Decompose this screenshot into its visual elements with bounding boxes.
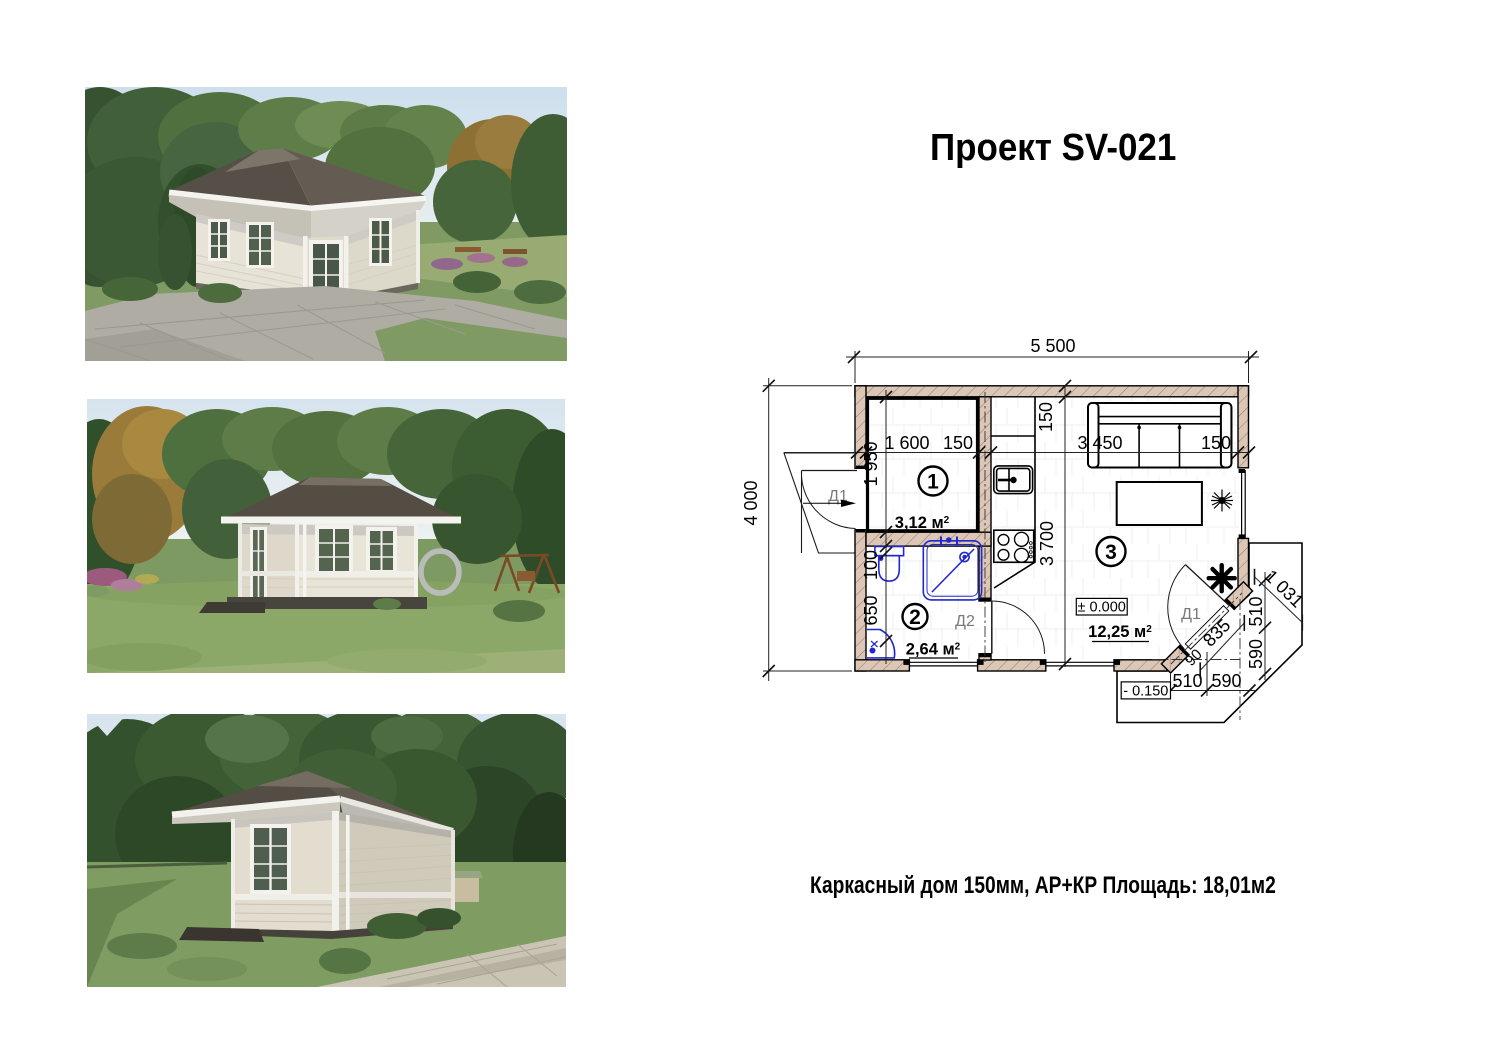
svg-text:Д1: Д1 bbox=[1181, 606, 1201, 623]
svg-text:± 0.000: ± 0.000 bbox=[1078, 600, 1126, 616]
svg-text:2: 2 bbox=[909, 606, 921, 629]
svg-text:3 700: 3 700 bbox=[1037, 521, 1057, 566]
svg-text:100: 100 bbox=[861, 550, 881, 580]
svg-text:650: 650 bbox=[861, 595, 881, 625]
svg-text:150: 150 bbox=[1036, 402, 1056, 432]
svg-text:5 500: 5 500 bbox=[1030, 336, 1075, 356]
svg-text:3: 3 bbox=[1105, 541, 1117, 564]
svg-text:1 600: 1 600 bbox=[884, 433, 929, 453]
svg-text:3,12 м2: 3,12 м2 bbox=[895, 514, 950, 532]
svg-text:510: 510 bbox=[1172, 671, 1202, 691]
svg-text:Д2: Д2 bbox=[955, 613, 975, 630]
svg-text:2,64 м2: 2,64 м2 bbox=[906, 641, 961, 659]
svg-text:1: 1 bbox=[927, 471, 939, 494]
svg-text:590: 590 bbox=[1211, 671, 1241, 691]
svg-text:4 000: 4 000 bbox=[741, 480, 761, 525]
svg-text:1 950: 1 950 bbox=[861, 441, 881, 486]
svg-text:590: 590 bbox=[1246, 639, 1266, 669]
svg-text:150: 150 bbox=[1201, 433, 1231, 453]
svg-text:12,25 м2: 12,25 м2 bbox=[1088, 623, 1152, 641]
svg-text:3 450: 3 450 bbox=[1077, 433, 1122, 453]
svg-text:- 0.150: - 0.150 bbox=[1123, 684, 1168, 700]
svg-text:150: 150 bbox=[943, 433, 973, 453]
svg-text:510: 510 bbox=[1246, 596, 1266, 626]
